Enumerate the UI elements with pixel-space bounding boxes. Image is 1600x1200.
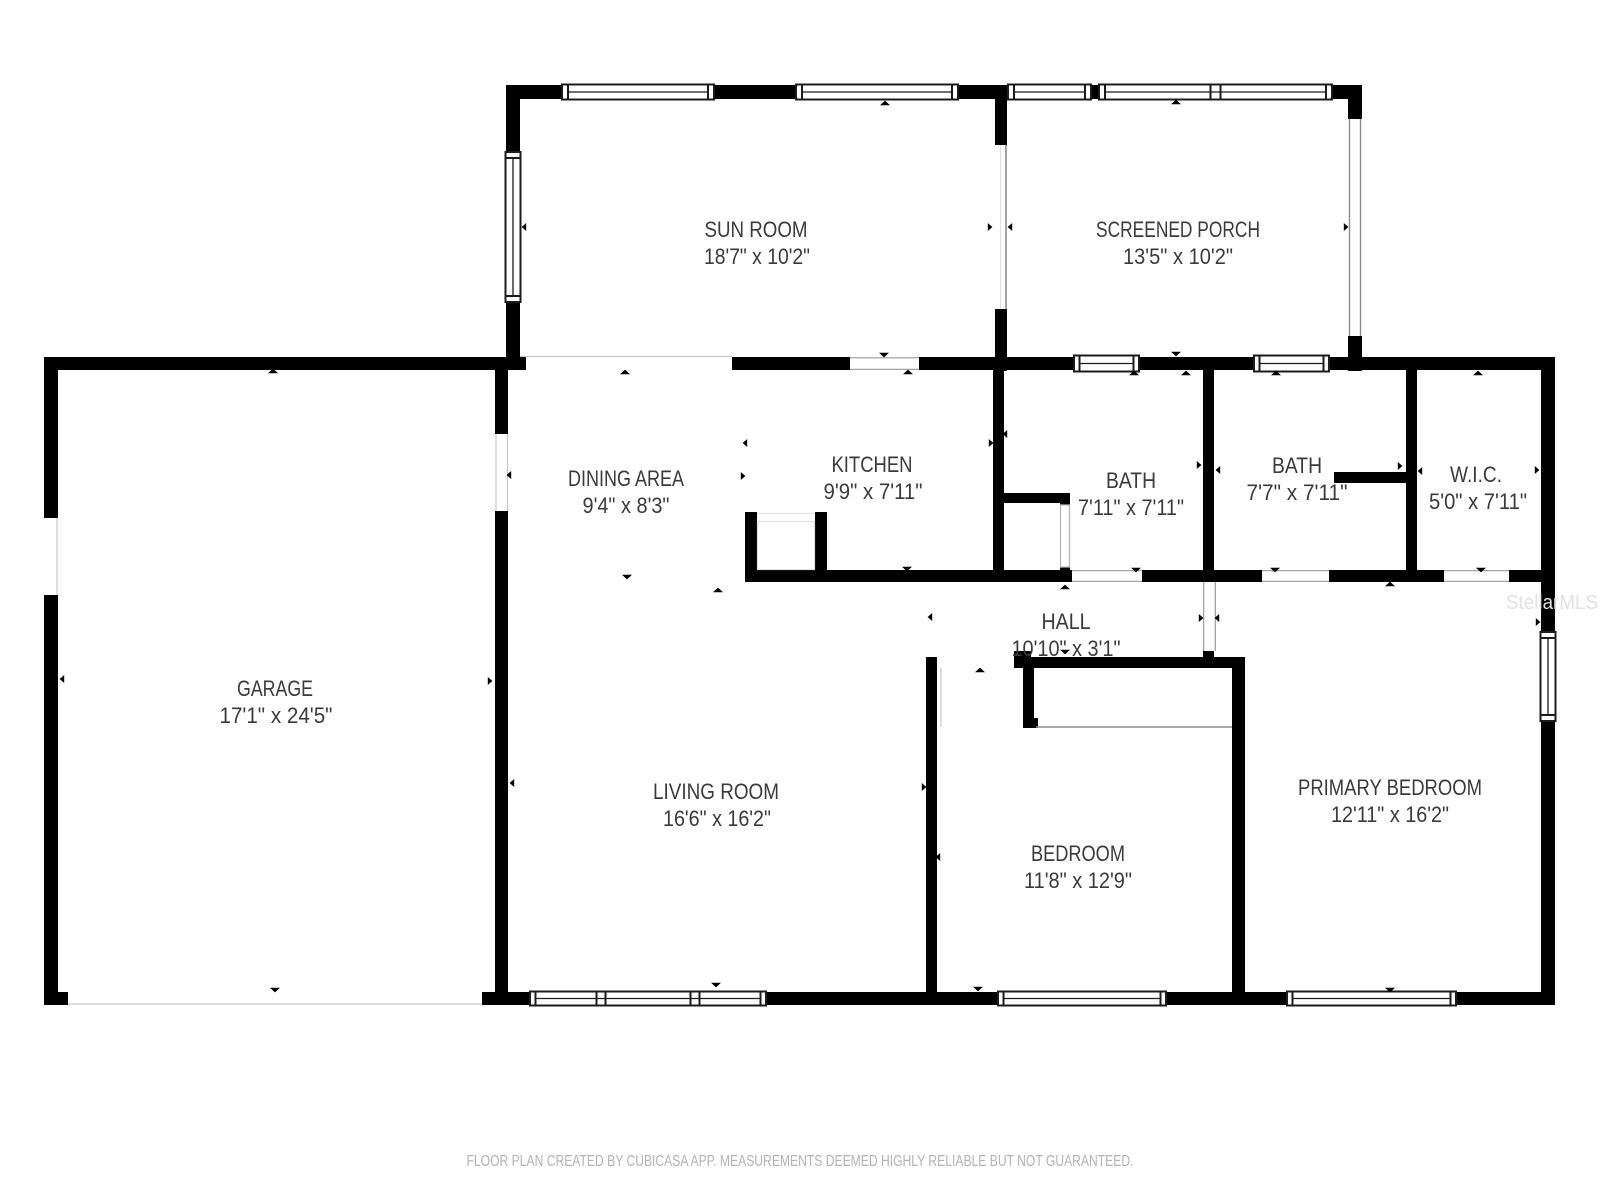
svg-text:9'4" x 8'3": 9'4" x 8'3" xyxy=(583,493,670,518)
svg-text:GARAGE: GARAGE xyxy=(237,676,313,701)
svg-text:16'6" x 16'2": 16'6" x 16'2" xyxy=(663,806,771,831)
svg-text:HALL: HALL xyxy=(1042,609,1091,634)
svg-text:12'11" x 16'2": 12'11" x 16'2" xyxy=(1331,802,1449,827)
svg-text:SUN ROOM: SUN ROOM xyxy=(705,217,808,242)
svg-text:9'9" x 7'11": 9'9" x 7'11" xyxy=(824,479,923,504)
svg-text:BATH: BATH xyxy=(1106,468,1156,493)
svg-text:KITCHEN: KITCHEN xyxy=(832,452,913,477)
svg-text:PRIMARY BEDROOM: PRIMARY BEDROOM xyxy=(1298,775,1482,800)
svg-text:SCREENED PORCH: SCREENED PORCH xyxy=(1096,217,1260,242)
svg-text:11'8" x 12'9": 11'8" x 12'9" xyxy=(1024,868,1132,893)
svg-text:LIVING ROOM: LIVING ROOM xyxy=(653,779,779,804)
svg-text:DINING AREA: DINING AREA xyxy=(568,466,684,491)
svg-text:BEDROOM: BEDROOM xyxy=(1031,841,1125,866)
svg-text:BATH: BATH xyxy=(1272,453,1322,478)
svg-text:FLOOR PLAN CREATED BY CUBICASA: FLOOR PLAN CREATED BY CUBICASA APP. MEAS… xyxy=(467,1153,1134,1170)
svg-text:18'7" x 10'2": 18'7" x 10'2" xyxy=(704,244,810,269)
svg-text:StellarMLS: StellarMLS xyxy=(1506,592,1598,614)
svg-text:W.I.C.: W.I.C. xyxy=(1450,462,1502,487)
svg-text:13'5" x 10'2": 13'5" x 10'2" xyxy=(1123,244,1233,269)
svg-text:17'1" x 24'5": 17'1" x 24'5" xyxy=(220,703,333,728)
svg-text:5'0" x 7'11": 5'0" x 7'11" xyxy=(1429,489,1527,514)
svg-text:10'10" x 3'1": 10'10" x 3'1" xyxy=(1012,636,1121,661)
svg-text:7'11" x 7'11": 7'11" x 7'11" xyxy=(1078,495,1184,520)
svg-text:7'7" x 7'11": 7'7" x 7'11" xyxy=(1247,480,1348,505)
